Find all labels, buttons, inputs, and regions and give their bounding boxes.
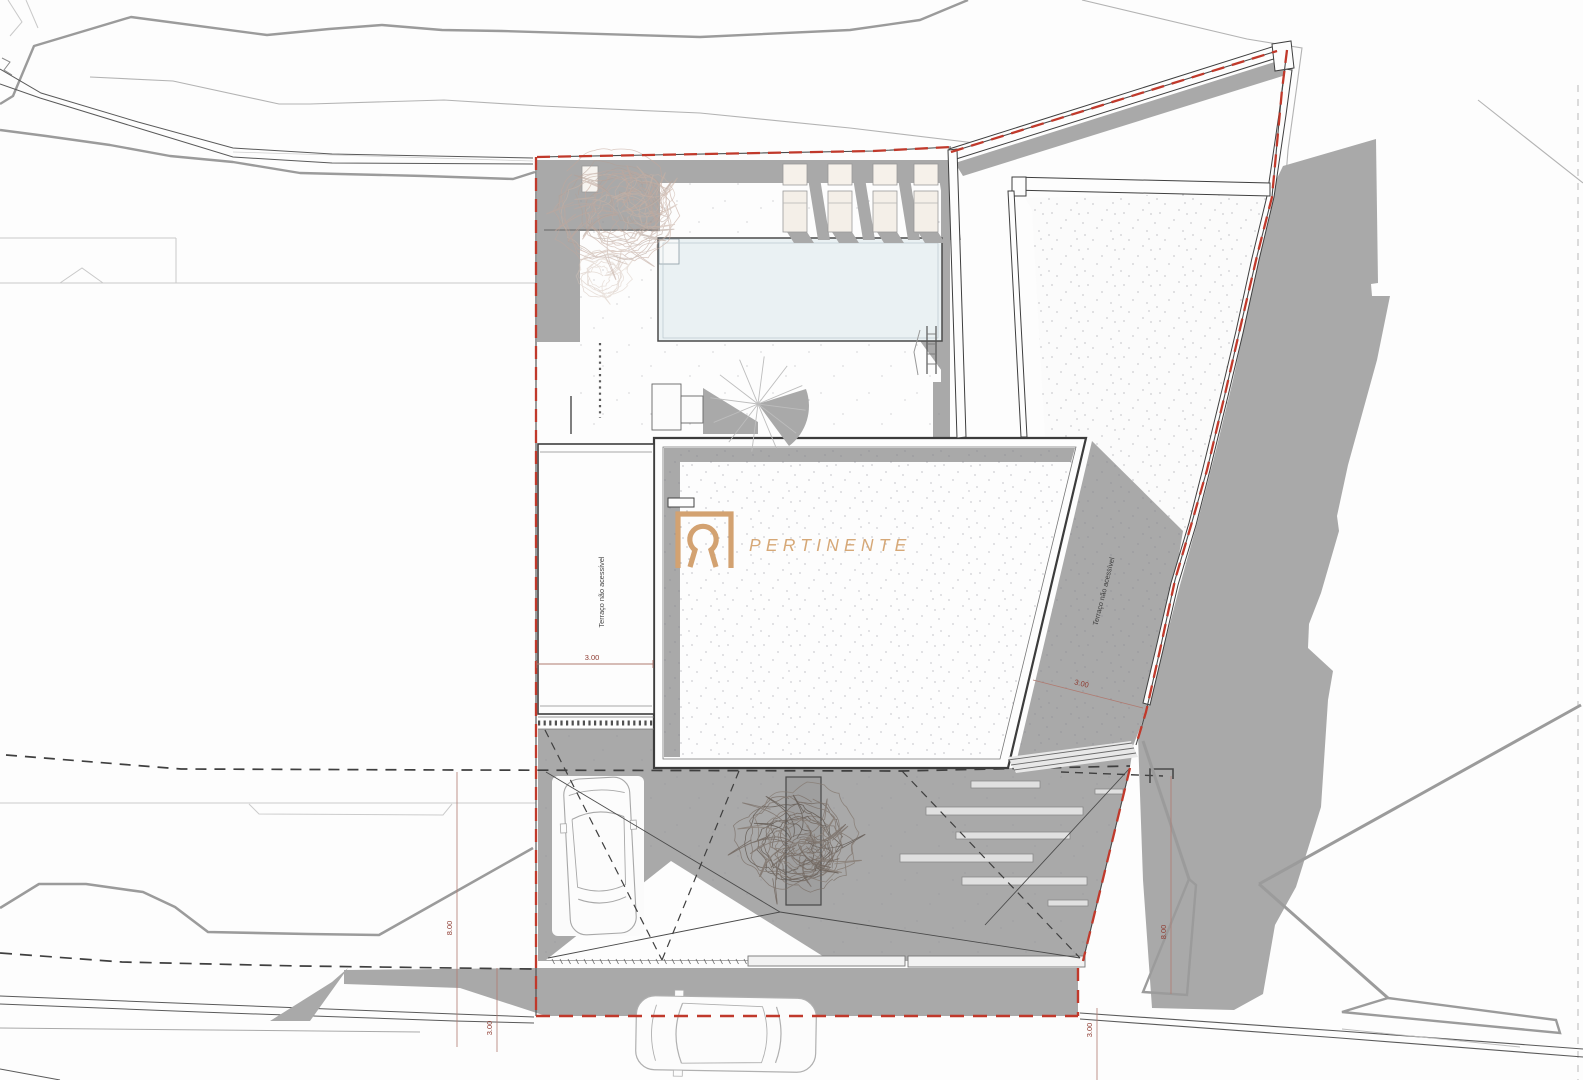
svg-text:3.00: 3.00 — [1085, 1023, 1094, 1038]
svg-text:8.00: 8.00 — [1159, 925, 1168, 940]
svg-text:3.00: 3.00 — [585, 653, 600, 662]
svg-text:PERTINENTE: PERTINENTE — [749, 535, 912, 555]
svg-text:Terraço não acessível: Terraço não acessível — [597, 556, 606, 627]
svg-text:3.00: 3.00 — [485, 1021, 494, 1036]
svg-text:8.00: 8.00 — [445, 921, 454, 936]
